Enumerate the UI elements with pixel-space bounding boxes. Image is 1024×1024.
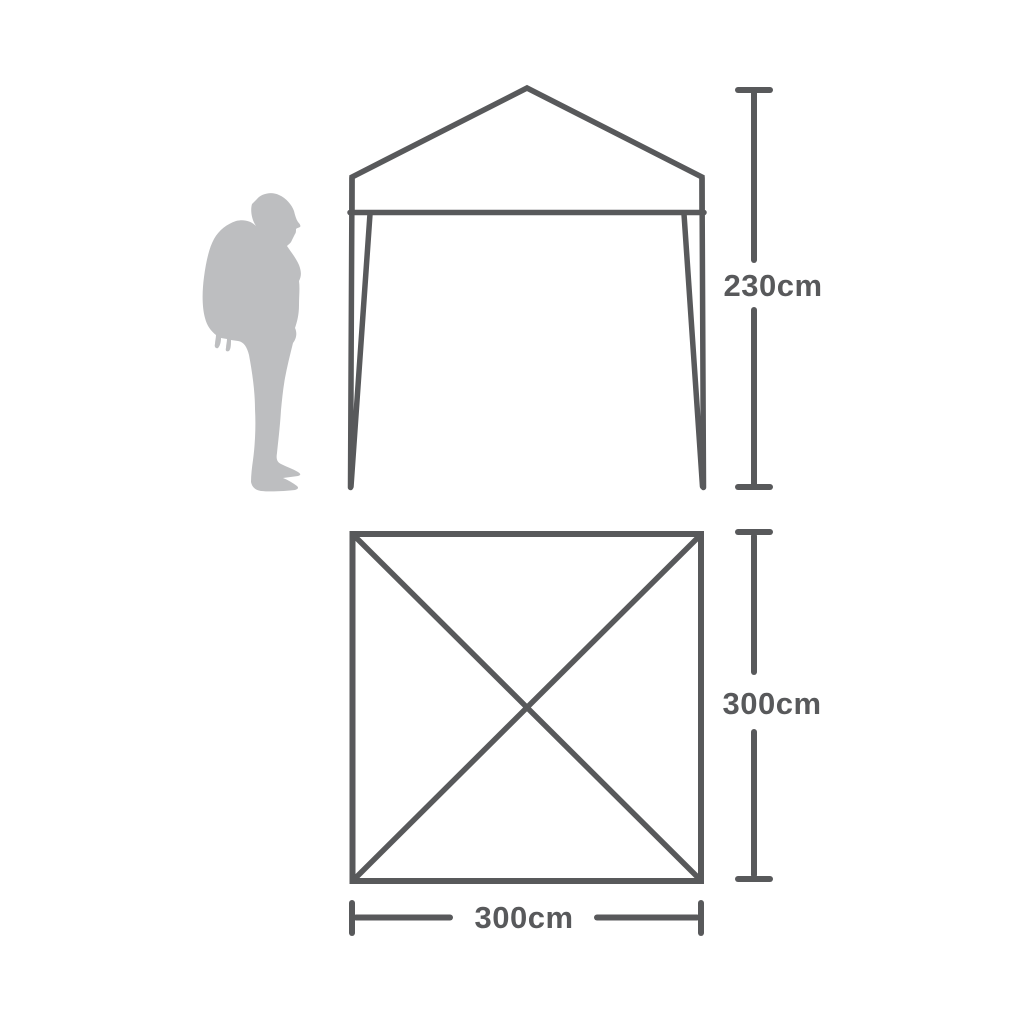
hiker-with-backpack-icon <box>203 193 301 491</box>
right-leg-outer <box>702 178 704 488</box>
bottom-dimension-label-group: 300cm <box>474 900 573 935</box>
bottom-dimension-label: 300cm <box>474 900 573 935</box>
product-dimension-diagram: 230cm 300cm 300cm <box>0 0 1024 1024</box>
gazebo-dimensions-svg: 230cm 300cm 300cm <box>0 0 1024 1024</box>
gazebo-plan-view <box>353 534 702 881</box>
scale-figure <box>203 193 301 491</box>
canopy-outline <box>352 88 702 213</box>
side-dimension-label-group: 300cm <box>722 686 821 721</box>
side-dimension-label: 300cm <box>722 686 821 721</box>
gazebo-front-view <box>350 88 704 488</box>
height-dimension-label-group: 230cm <box>723 268 822 303</box>
height-dimension-label: 230cm <box>723 268 822 303</box>
